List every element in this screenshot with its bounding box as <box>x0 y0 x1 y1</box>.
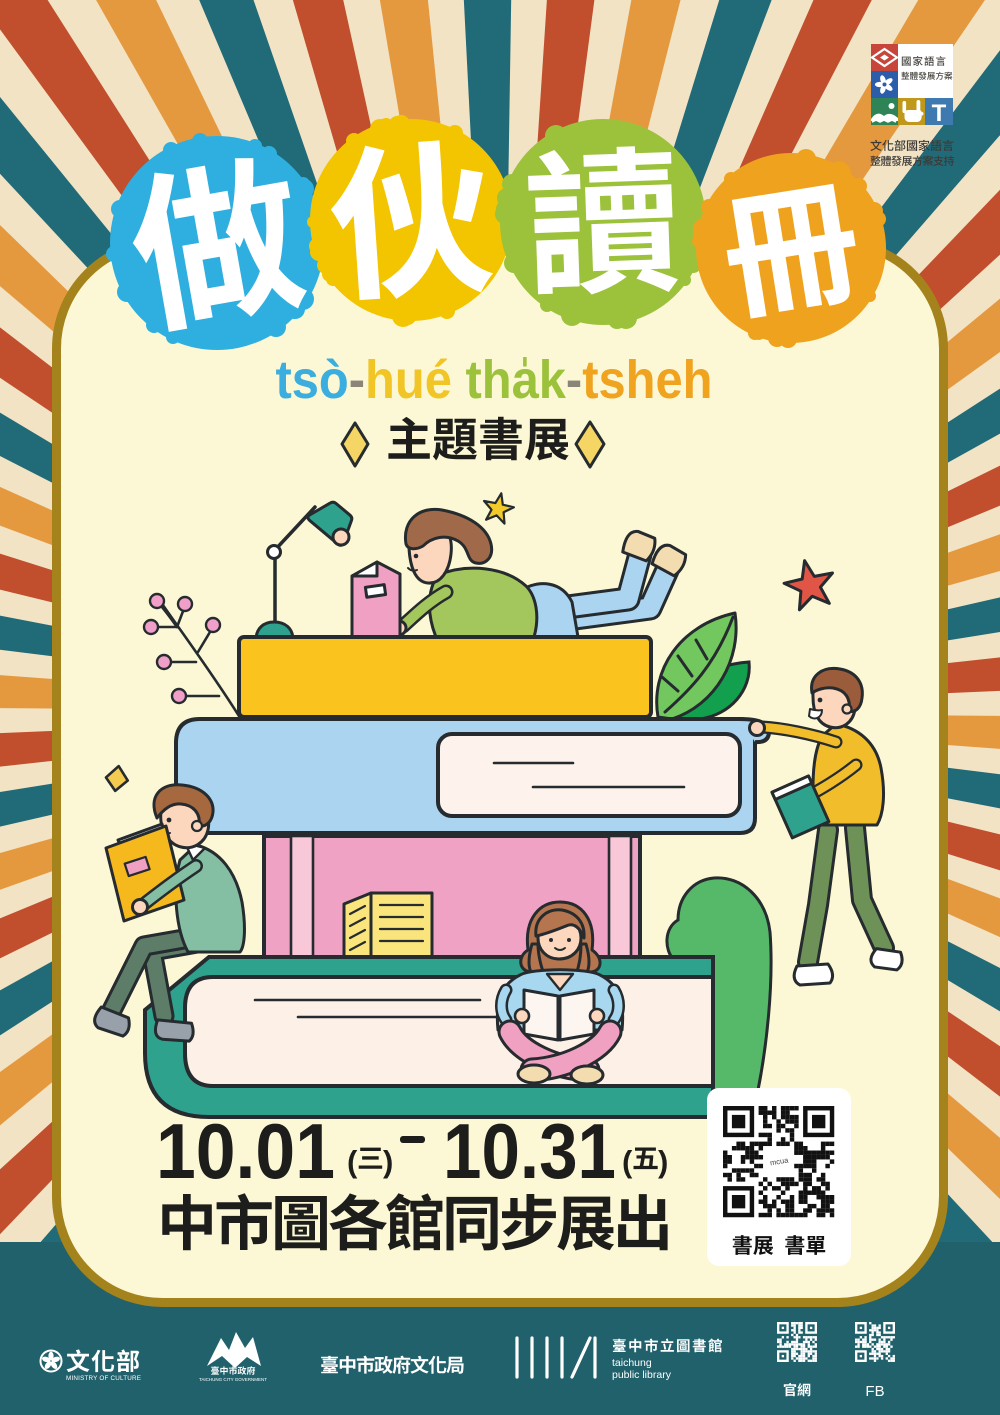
svg-text:taichung: taichung <box>612 1357 652 1369</box>
svg-text:10.31: 10.31 <box>443 1107 616 1195</box>
svg-text:MINISTRY OF CULTURE: MINISTRY OF CULTURE <box>66 1375 141 1382</box>
svg-text:FB: FB <box>865 1383 884 1400</box>
svg-text:): ) <box>658 1144 668 1179</box>
svg-text:(: ( <box>622 1144 633 1179</box>
svg-text:tsò-hué tha̍k-tsheh: tsò-hué tha̍k-tsheh <box>276 350 713 410</box>
svg-text:10.01: 10.01 <box>156 1107 335 1195</box>
svg-text:TAICHUNG CITY GOVERNMENT: TAICHUNG CITY GOVERNMENT <box>199 1377 267 1382</box>
svg-text:public library: public library <box>612 1369 672 1381</box>
svg-text:T: T <box>932 100 947 127</box>
svg-text:(: ( <box>347 1144 358 1179</box>
svg-text:): ) <box>383 1144 393 1179</box>
